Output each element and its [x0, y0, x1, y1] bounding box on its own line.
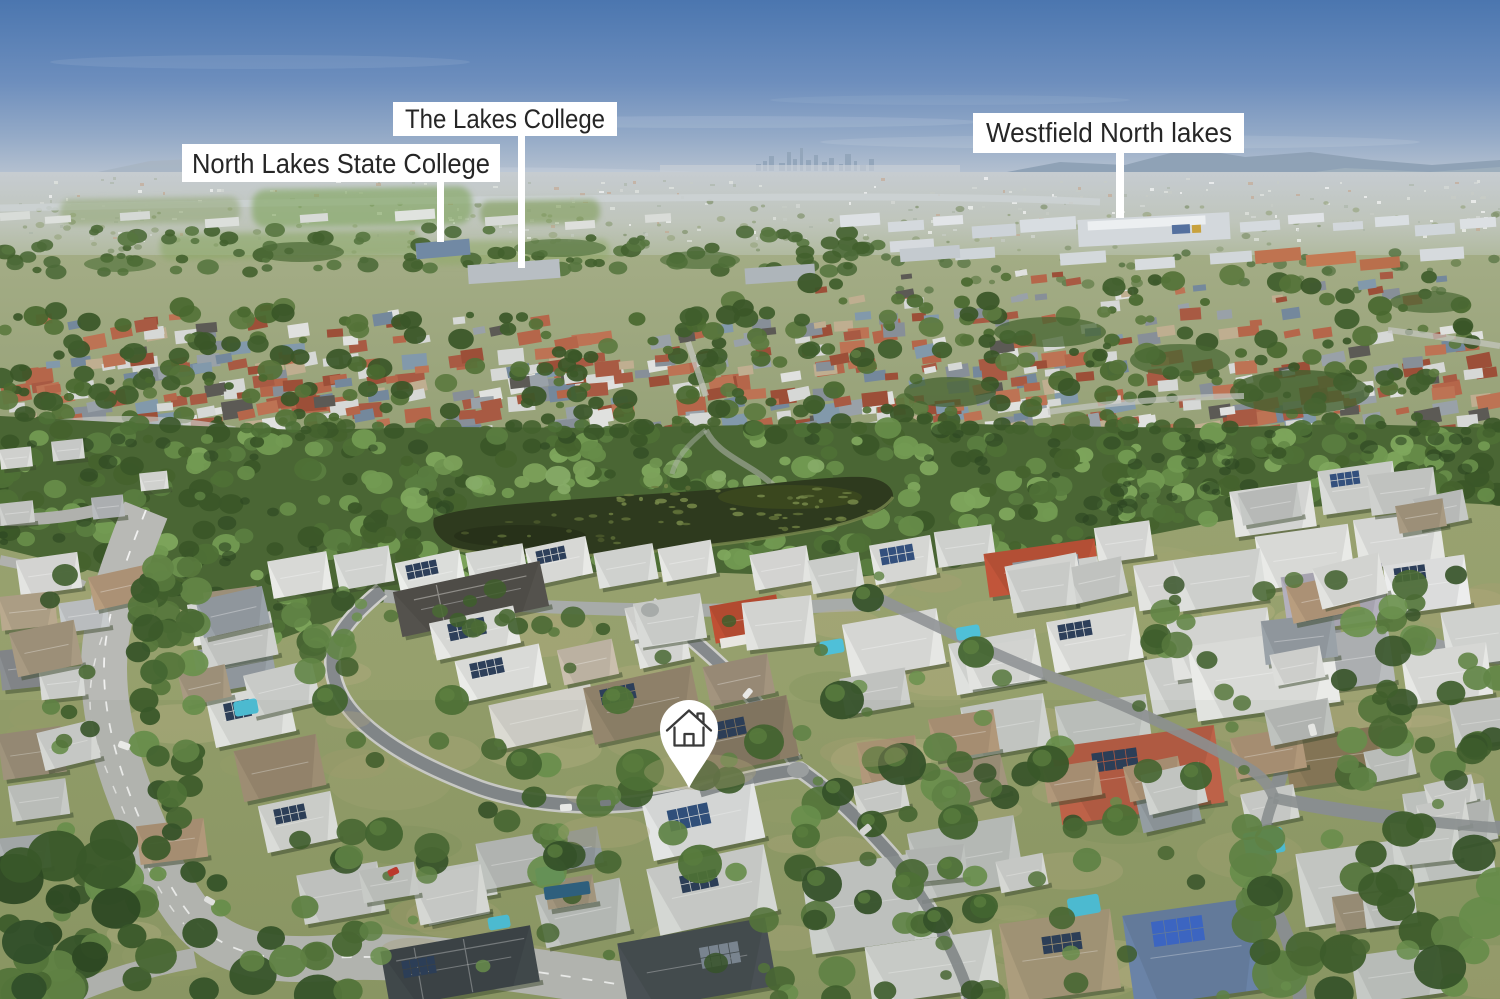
svg-text:Westfield North lakes: Westfield North lakes: [986, 117, 1232, 148]
svg-text:North Lakes State College: North Lakes State College: [192, 148, 490, 179]
svg-text:The Lakes College: The Lakes College: [405, 104, 605, 134]
